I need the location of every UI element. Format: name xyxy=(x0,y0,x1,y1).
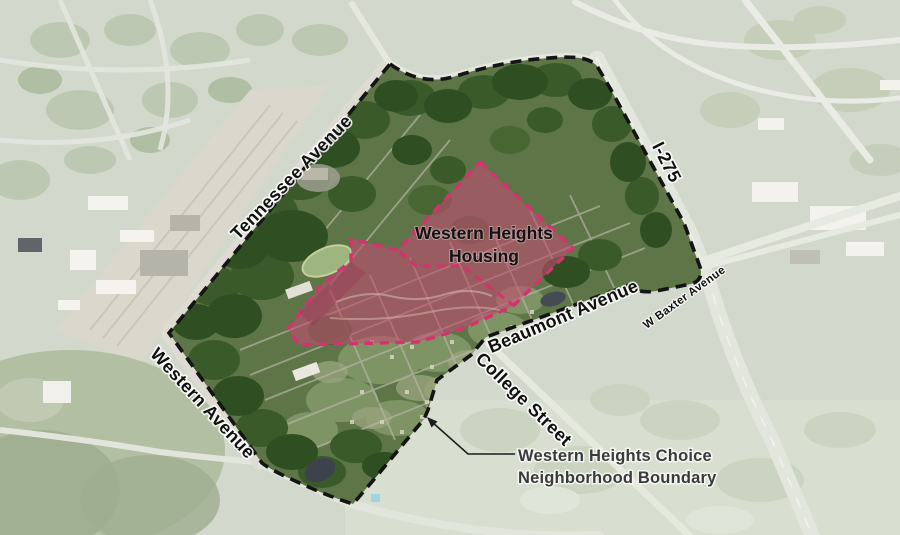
housing-label-line2: Housing xyxy=(449,246,519,266)
satellite-map: Tennessee Avenue Western Avenue Beaumont… xyxy=(0,0,900,535)
annotation-line2: Neighborhood Boundary xyxy=(518,469,717,487)
housing-label-line1: Western Heights xyxy=(415,223,553,243)
map-canvas: Tennessee Avenue Western Avenue Beaumont… xyxy=(0,0,900,535)
annotation-line1: Western Heights Choice xyxy=(518,447,712,465)
